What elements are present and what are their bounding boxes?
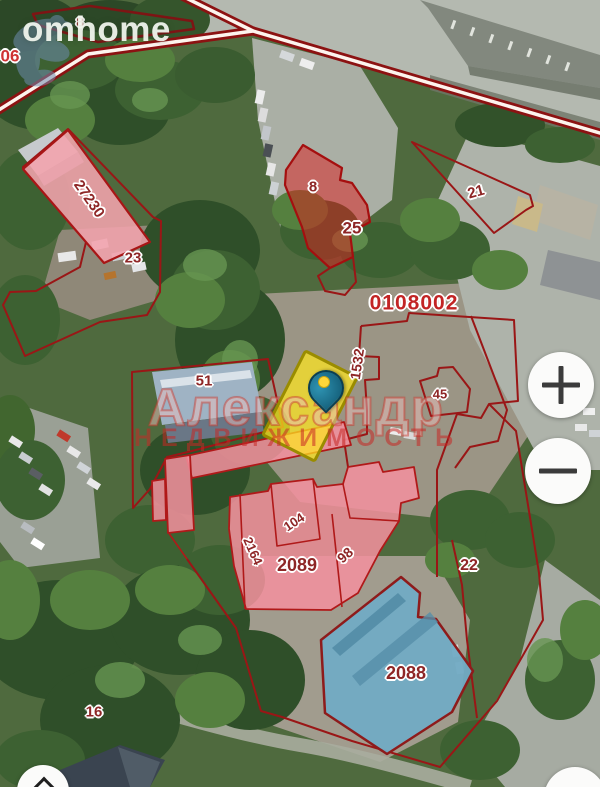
parcel-label-25: 25 [343,220,362,237]
parcel-label-2088: 2088 [386,664,426,682]
watermark-text-line2: НЕДВИЖИМОСТЬ [134,424,462,453]
parcel-label-45: 45 [433,388,447,401]
parcel-label-22: 22 [460,558,478,574]
parcel-label-1532: 1532 [348,348,366,381]
minus-icon [539,469,577,474]
zoom-in-button[interactable] [528,352,594,418]
parcel-label-8: 8 [309,180,317,195]
parcel-label-16: 16 [86,705,103,720]
cadastral-quarter-label: 0108002 [370,293,459,314]
parcel-label-51: 51 [196,374,213,389]
plus-icon [559,366,564,404]
brand-logo: omhome [22,10,171,50]
parcel-label-06: 06 [1,48,20,65]
parcel-label-2089: 2089 [277,556,317,574]
zoom-out-button[interactable] [525,438,591,504]
parcel-label-23: 23 [125,251,142,266]
parcel-label-21: 21 [466,182,486,201]
map-canvas[interactable]: Александр НЕДВИЖИМОСТЬ 06 8 27230 23 8 2… [0,0,600,787]
location-pin-hole [318,376,330,388]
